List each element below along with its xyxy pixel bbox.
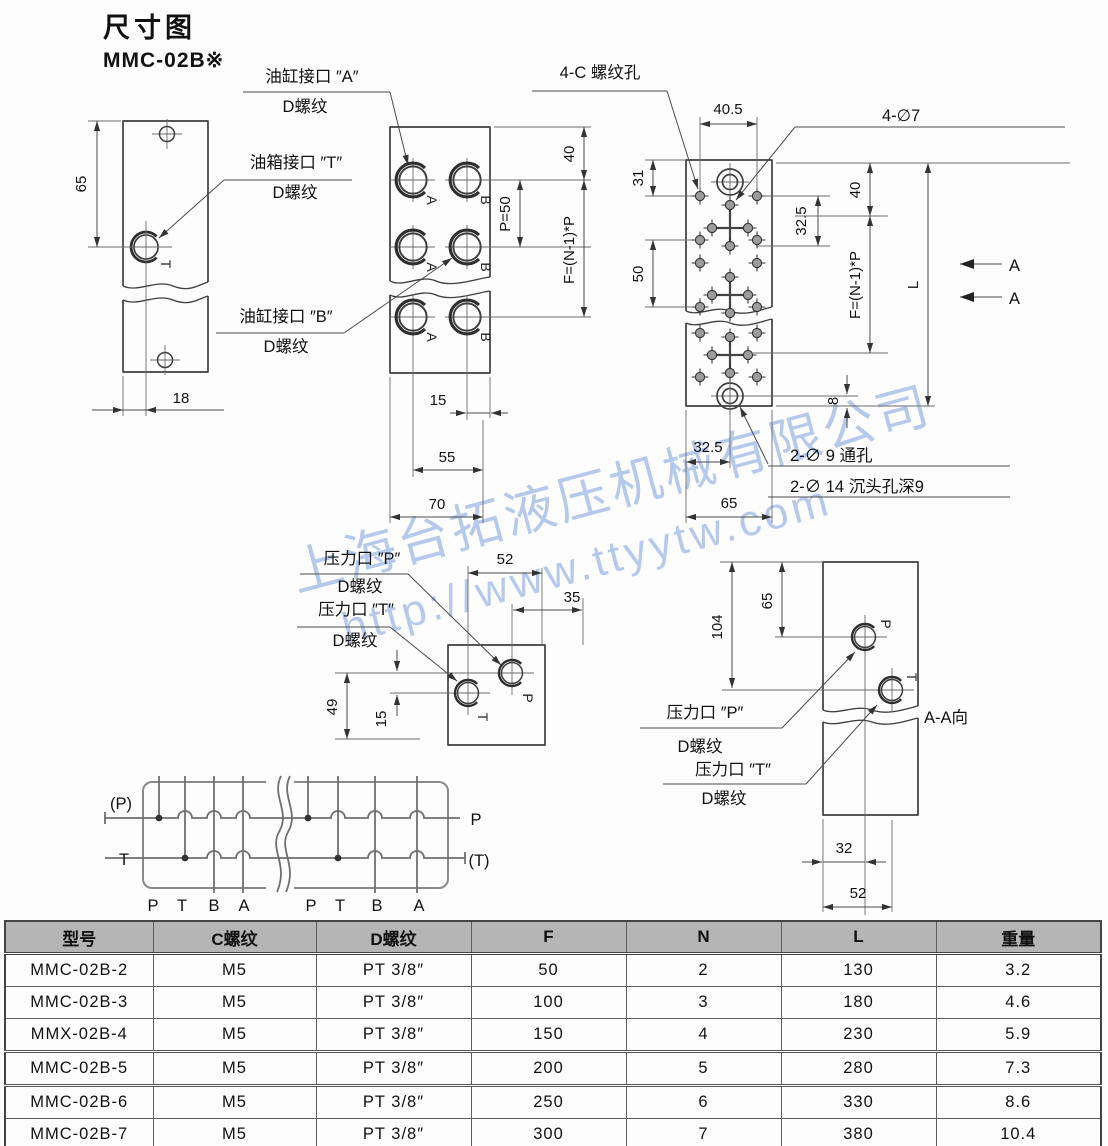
- front-port-view: A B A B A B 40 P=50 F=(N-1)*P 15: [390, 127, 591, 523]
- port-label: T: [335, 897, 345, 915]
- port-label: B: [371, 897, 382, 915]
- table-cell: 2: [626, 954, 781, 987]
- tap-hole-pattern: [692, 188, 766, 386]
- table-row: MMC-02B-5M5PT 3/8″20052807.3: [5, 1052, 1101, 1086]
- callout-cbore14: 2-∅ 14 沉头孔深9: [790, 477, 924, 496]
- port-callouts-left: 油缸接口 ″A″ D螺纹 油箱接口 ″T″ D螺纹 油缸接口 ″B″ D螺纹: [159, 66, 452, 356]
- dim-sec-104: 104: [709, 614, 726, 639]
- hole-letter-p: P: [520, 693, 536, 702]
- hole-letter-b1: B: [478, 195, 494, 204]
- dim-pt-35: 35: [564, 589, 581, 606]
- dim-top-f: F=(N-1)*P: [847, 251, 864, 319]
- dim-pt-15: 15: [373, 711, 390, 728]
- callout-cyl-b: 油缸接口 ″B″: [239, 306, 332, 326]
- col-model: 型号: [5, 921, 153, 954]
- table-cell: 5.9: [936, 1019, 1101, 1052]
- table-cell: 3: [626, 987, 781, 1019]
- table-row: MMX-02B-4M5PT 3/8″15042305.9: [5, 1019, 1101, 1052]
- left-side-view: T 65 18: [73, 119, 224, 416]
- port-holes-ab: A B A B A B: [391, 158, 494, 477]
- hole-letter-a2: A: [424, 262, 440, 272]
- table-cell: 180: [781, 987, 936, 1019]
- dim-bot-65: 65: [721, 495, 738, 512]
- port-label: T: [177, 897, 187, 915]
- table-cell: PT 3/8″: [316, 954, 471, 987]
- table-cell: 7.3: [936, 1052, 1101, 1086]
- port-label: A: [413, 897, 424, 915]
- table-cell: 200: [471, 1052, 626, 1086]
- table-cell: 10.4: [936, 1119, 1101, 1146]
- table-cell: M5: [153, 954, 316, 987]
- table-row: MMC-02B-7M5PT 3/8″300738010.4: [5, 1119, 1101, 1146]
- table-cell: PT 3/8″: [316, 1019, 471, 1052]
- dim-front-15: 15: [430, 392, 447, 409]
- table-row: MMC-02B-6M5PT 3/8″25063308.6: [5, 1086, 1101, 1119]
- hole-letter-t: T: [158, 260, 174, 269]
- schematic-right-t: (T): [468, 852, 489, 870]
- table-cell: 3.2: [936, 954, 1101, 987]
- callout-press-t1: 压力口 ″T″: [318, 600, 394, 619]
- table-cell: MMC-02B-3: [5, 987, 153, 1019]
- table-cell: 100: [471, 987, 626, 1019]
- col-d-thread: D螺纹: [316, 921, 471, 954]
- port-label: A: [238, 897, 249, 915]
- dim-bot-325: 32.5: [693, 439, 722, 456]
- dim-top-31: 31: [630, 170, 647, 187]
- table-cell: 8.6: [936, 1086, 1101, 1119]
- dim-side-width: 18: [173, 390, 190, 407]
- port-label: P: [147, 897, 158, 915]
- spec-table-body: MMC-02B-2M5PT 3/8″5021303.2MMC-02B-3M5PT…: [5, 954, 1101, 1146]
- hole-letter-a3: A: [424, 332, 440, 342]
- callout-press-t2: 压力口 ″T″: [695, 760, 771, 779]
- table-row: MMC-02B-3M5PT 3/8″10031804.6: [5, 987, 1101, 1019]
- col-c-thread: C螺纹: [153, 921, 316, 954]
- engineering-drawing: 上海台拓液压机械有限公司 http://www.ttyytw.com T 65: [0, 0, 1108, 920]
- table-cell: 380: [781, 1119, 936, 1146]
- schematic-right-p: P: [470, 811, 481, 829]
- table-cell: 7: [626, 1119, 781, 1146]
- schematic-port-labels-left: P T B A: [147, 897, 249, 915]
- table-cell: M5: [153, 1052, 316, 1086]
- table-cell: 6: [626, 1086, 781, 1119]
- table-cell: M5: [153, 1019, 316, 1052]
- section-arrow-label: A: [1009, 290, 1020, 308]
- table-cell: 280: [781, 1052, 936, 1086]
- table-row: MMC-02B-2M5PT 3/8″5021303.2: [5, 954, 1101, 987]
- table-header-row: 型号 C螺纹 D螺纹 F N L 重量: [5, 921, 1101, 954]
- mounting-top-view: 40.5 4-C 螺纹孔 4-∅7 31 50 32.5: [532, 63, 1070, 523]
- dim-front-top: 40: [561, 146, 578, 163]
- table-cell: M5: [153, 1086, 316, 1119]
- col-weight: 重量: [936, 921, 1101, 954]
- callout-thread-d7: D螺纹: [702, 789, 747, 808]
- hole-letter-p: P: [878, 619, 894, 628]
- table-cell: M5: [153, 987, 316, 1019]
- watermark: 上海台拓液压机械有限公司 http://www.ttyytw.com: [285, 377, 953, 663]
- callout-cyl-a: 油缸接口 ″A″: [265, 66, 358, 86]
- table-cell: MMC-02B-2: [5, 954, 153, 987]
- table-cell: 4: [626, 1019, 781, 1052]
- dim-top-325: 32.5: [793, 206, 810, 235]
- dim-top-40: 40: [847, 182, 864, 199]
- callout-thread-d5: D螺纹: [333, 631, 378, 650]
- table-cell: 50: [471, 954, 626, 987]
- table-cell: MMC-02B-6: [5, 1086, 153, 1119]
- hole-letter-b3: B: [478, 332, 494, 341]
- callout-tap-holes: 4-C 螺纹孔: [560, 63, 641, 82]
- spec-table: 型号 C螺纹 D螺纹 F N L 重量 MMC-02B-2M5PT 3/8″50…: [4, 920, 1102, 1146]
- dim-pt-49: 49: [324, 699, 341, 716]
- hydraulic-schematic: (P) T P (T) P T B A P T B A: [105, 770, 490, 915]
- dim-top-length: L: [905, 281, 922, 289]
- table-cell: PT 3/8″: [316, 987, 471, 1019]
- schematic-left-p: (P): [110, 795, 132, 813]
- callout-through9: 2-∅ 9 通孔: [790, 446, 873, 465]
- schematic-port-labels-right: P T B A: [305, 897, 424, 915]
- dim-front-f: F=(N-1)*P: [561, 216, 578, 284]
- col-f: F: [471, 921, 626, 954]
- dimension-drawing-page: 尺寸图 MMC-02B※: [0, 0, 1108, 1146]
- hole-letter-t: T: [904, 673, 920, 682]
- callout-thread-d1: D螺纹: [283, 97, 328, 116]
- dim-sec-32: 32: [836, 840, 853, 857]
- callout-thread-d4: D螺纹: [338, 577, 383, 596]
- section-arrow-a1: A: [960, 257, 1020, 275]
- table-cell: PT 3/8″: [316, 1052, 471, 1086]
- table-cell: PT 3/8″: [316, 1086, 471, 1119]
- dim-front-55: 55: [439, 449, 456, 466]
- table-cell: PT 3/8″: [316, 1119, 471, 1146]
- table-cell: 330: [781, 1086, 936, 1119]
- schematic-left-t: T: [119, 851, 129, 869]
- table-cell: MMC-02B-5: [5, 1052, 153, 1086]
- dim-top-405: 40.5: [713, 101, 742, 118]
- table-cell: 150: [471, 1019, 626, 1052]
- section-aa-label: A-A向: [924, 708, 968, 727]
- table-cell: 230: [781, 1019, 936, 1052]
- dim-sec-65: 65: [759, 593, 776, 610]
- table-cell: 5: [626, 1052, 781, 1086]
- callout-thread-d2: D螺纹: [273, 183, 318, 202]
- dim-side-height: 65: [73, 176, 90, 193]
- hole-letter-t: T: [475, 713, 491, 722]
- table-cell: M5: [153, 1119, 316, 1146]
- dim-top-50: 50: [630, 266, 647, 283]
- callout-thread-d3: D螺纹: [264, 337, 309, 356]
- table-cell: 130: [781, 954, 936, 987]
- port-label: P: [305, 897, 316, 915]
- callout-press-p1: 压力口 ″P″: [324, 549, 401, 568]
- callout-thread-d6: D螺纹: [678, 737, 723, 756]
- dim-sec-52: 52: [850, 885, 867, 902]
- dim-top-8: 8: [825, 397, 842, 405]
- table-cell: 250: [471, 1086, 626, 1119]
- callout-drill7: 4-∅7: [882, 107, 920, 125]
- col-l: L: [781, 921, 936, 954]
- table-cell: 300: [471, 1119, 626, 1146]
- hole-letter-a1: A: [424, 195, 440, 205]
- section-aa-view: P T 104 65 32 52 A-A向 压力口 ″P″ D螺纹 压力口 ″T…: [640, 562, 968, 915]
- dim-front-pitch: P=50: [497, 196, 514, 231]
- table-cell: MMC-02B-7: [5, 1119, 153, 1146]
- callout-tank-t: 油箱接口 ″T″: [250, 153, 343, 172]
- callout-press-p2: 压力口 ″P″: [667, 703, 744, 722]
- section-arrow-label: A: [1009, 257, 1020, 275]
- dim-front-70: 70: [429, 496, 446, 513]
- port-label: B: [208, 897, 219, 915]
- dim-pt-52: 52: [497, 551, 514, 568]
- section-arrow-a2: A: [960, 290, 1020, 308]
- table-cell: 4.6: [936, 987, 1101, 1019]
- hole-letter-b2: B: [478, 262, 494, 271]
- table-cell: MMX-02B-4: [5, 1019, 153, 1052]
- col-n: N: [626, 921, 781, 954]
